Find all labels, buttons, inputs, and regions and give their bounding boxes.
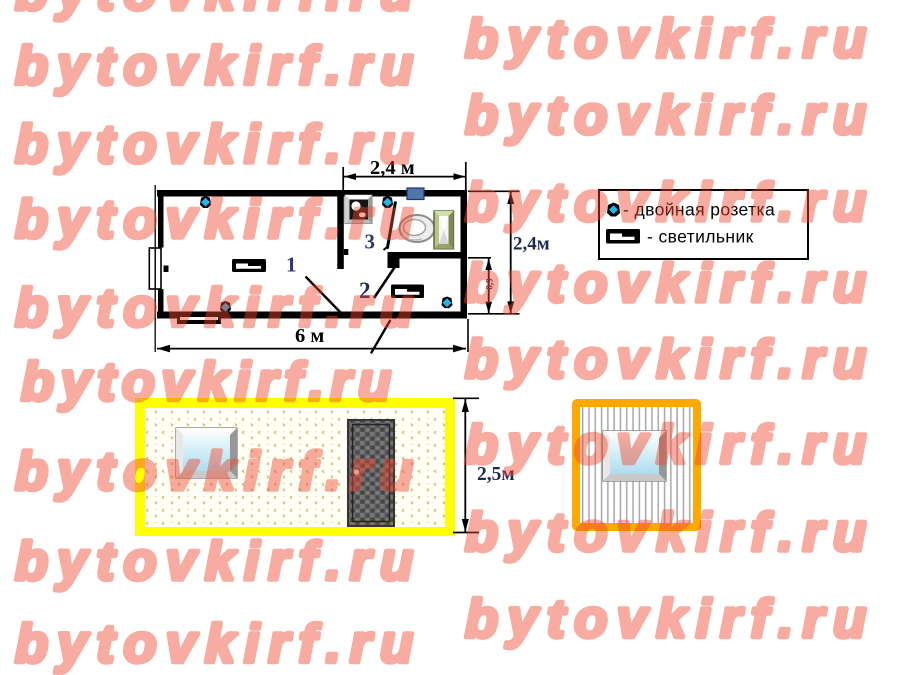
svg-text:bytovkirf.ru: bytovkirf.ru (465, 503, 866, 563)
svg-text:bytovkirf.ru: bytovkirf.ru (15, 614, 413, 674)
svg-text:bytovkirf.ru: bytovkirf.ru (465, 86, 866, 146)
svg-text:bytovkirf.ru: bytovkirf.ru (465, 589, 866, 649)
svg-text:bytovkirf.ru: bytovkirf.ru (15, 36, 413, 96)
svg-text:bytovkirf.ru: bytovkirf.ru (21, 352, 391, 412)
svg-text:bytovkirf.ru: bytovkirf.ru (465, 9, 866, 69)
svg-text:bytovkirf.ru: bytovkirf.ru (15, 442, 413, 502)
svg-text:bytovkirf.ru: bytovkirf.ru (15, 190, 413, 250)
svg-text:1: 1 (286, 253, 297, 277)
svg-text:bytovkirf.ru: bytovkirf.ru (15, 278, 413, 338)
svg-text:bytovkirf.ru: bytovkirf.ru (465, 173, 866, 233)
svg-text:bytovkirf.ru: bytovkirf.ru (15, 532, 413, 592)
svg-text:bytovkirf.ru: bytovkirf.ru (465, 415, 866, 475)
svg-text:bytovkirf.ru: bytovkirf.ru (15, 0, 413, 22)
svg-text:2,4м: 2,4м (513, 234, 550, 255)
svg-text:bytovkirf.ru: bytovkirf.ru (465, 254, 866, 314)
svg-text:bytovkirf.ru: bytovkirf.ru (465, 330, 866, 390)
svg-text:bytovkirf.ru: bytovkirf.ru (15, 115, 413, 175)
